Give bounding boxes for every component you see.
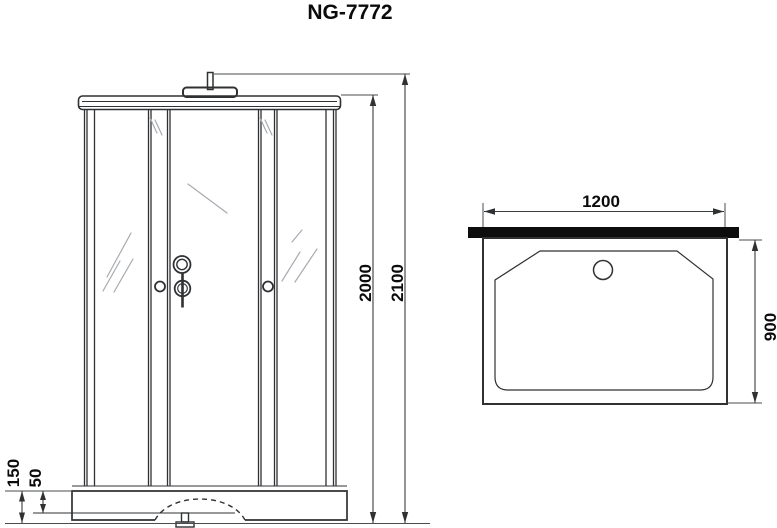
shower-tray-front [5,486,430,527]
door-knob-left [155,282,165,292]
mixer-faucet [174,256,191,308]
door-knob-right [263,282,273,292]
front-view: 150 50 2000 2100 [4,73,430,528]
technical-drawing-page: NG-7772 [0,0,777,528]
drain-hole [594,261,613,280]
dimension-total-height: 2100 [214,74,410,523]
frame-profiles [85,110,337,486]
drawing-canvas: NG-7772 [0,0,777,528]
tray-arc-cutout [155,499,245,520]
dimension-width: 1200 [483,192,725,227]
dim-label-2100: 2100 [388,264,407,302]
glass-hatch-marks [103,118,317,292]
dimension-depth: 900 [727,240,777,403]
dim-label-2000: 2000 [356,264,375,302]
tray-basin [495,251,713,390]
tray-outline-top [483,238,727,404]
dimension-cabin-height: 2000 [341,95,378,523]
dim-label-900: 900 [761,313,777,341]
model-title: NG-7772 [307,1,392,24]
roof [79,96,341,110]
top-view: 1200 900 [468,192,777,404]
dim-label-1200: 1200 [582,192,620,211]
adjustable-foot [176,513,194,527]
dim-label-150: 150 [4,459,23,487]
dim-label-50: 50 [26,469,45,488]
back-wall-bar [468,227,739,238]
